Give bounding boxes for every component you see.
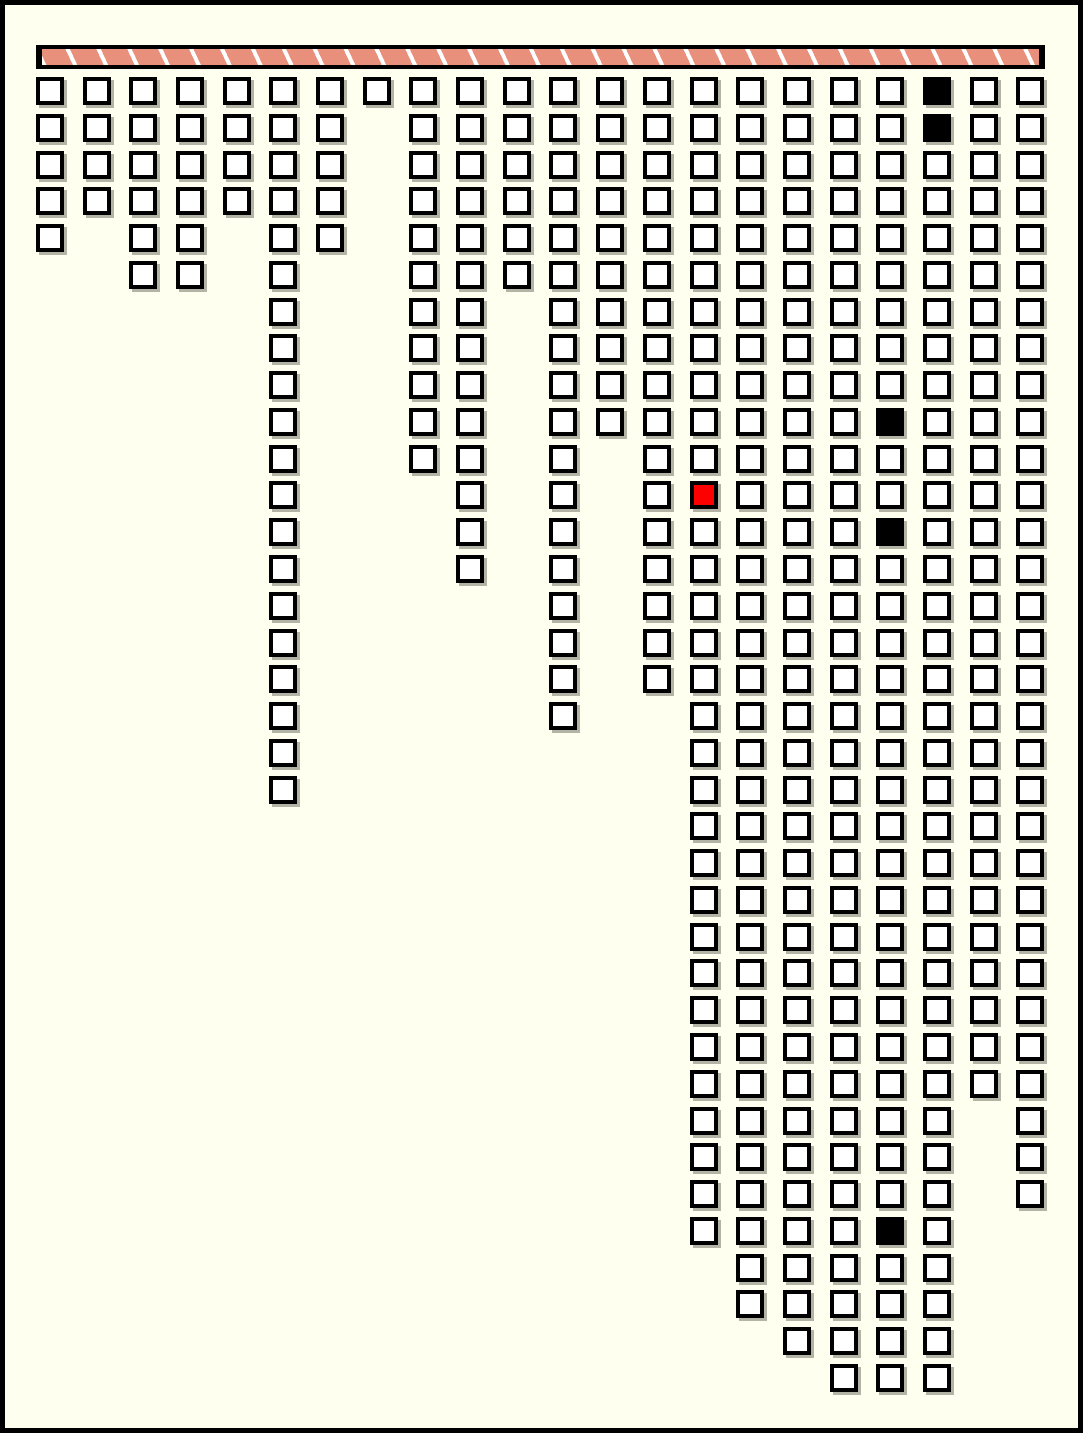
grid-cell — [736, 1180, 764, 1208]
grid-cell — [876, 1217, 904, 1245]
grid-cell — [503, 224, 531, 252]
grid-cell — [783, 481, 811, 509]
grid-cell — [269, 114, 297, 142]
grid-cell — [736, 261, 764, 289]
grid-cell — [1016, 371, 1044, 399]
grid-cell — [736, 1290, 764, 1318]
grid-cell — [269, 629, 297, 657]
grid-cell — [783, 224, 811, 252]
grid-cell — [596, 77, 624, 105]
grid-cell — [269, 77, 297, 105]
grid-cell — [83, 151, 111, 179]
grid-cell — [923, 923, 951, 951]
grid-cell — [269, 187, 297, 215]
grid-cell — [1016, 812, 1044, 840]
grid-cell — [409, 187, 437, 215]
grid-cell — [923, 996, 951, 1024]
grid-cell — [1016, 114, 1044, 142]
grid-cell — [456, 518, 484, 546]
grid-cell — [736, 776, 764, 804]
grid-cell — [830, 77, 858, 105]
grid-cell — [830, 1254, 858, 1282]
grid-cell — [783, 849, 811, 877]
grid-cell — [876, 187, 904, 215]
grid-cell — [643, 334, 671, 362]
grid-cell — [549, 114, 577, 142]
grid-cell — [783, 1070, 811, 1098]
grid-cell — [783, 1143, 811, 1171]
grid-cell — [643, 224, 671, 252]
grid-cell — [876, 1033, 904, 1061]
grid-cell — [876, 518, 904, 546]
grid-cell — [923, 555, 951, 583]
grid-cell — [269, 298, 297, 326]
grid-cell — [736, 151, 764, 179]
grid-cell — [129, 224, 157, 252]
grid-cell — [643, 592, 671, 620]
grid-cell — [923, 334, 951, 362]
grid-cell — [643, 481, 671, 509]
grid-cell — [970, 702, 998, 730]
grid-cell — [596, 224, 624, 252]
grid-cell — [1016, 959, 1044, 987]
grid-cell — [269, 702, 297, 730]
grid-cell — [503, 261, 531, 289]
grid-cell — [643, 151, 671, 179]
grid-cell — [783, 1217, 811, 1245]
grid-cell — [690, 702, 718, 730]
grid-cell — [783, 923, 811, 951]
grid-cell — [1016, 261, 1044, 289]
grid-cell — [736, 1107, 764, 1135]
grid-cell — [690, 886, 718, 914]
grid-cell — [923, 592, 951, 620]
grid-cell — [456, 555, 484, 583]
grid-cell — [736, 114, 764, 142]
grid-cell — [970, 261, 998, 289]
grid-cell — [830, 1327, 858, 1355]
grid-cell — [643, 518, 671, 546]
grid-cell — [549, 702, 577, 730]
grid-cell — [1016, 555, 1044, 583]
grid-cell — [643, 114, 671, 142]
grid-cell — [736, 1033, 764, 1061]
grid-cell — [970, 739, 998, 767]
grid-cell — [1016, 334, 1044, 362]
grid-cell — [830, 592, 858, 620]
grid-cell — [970, 518, 998, 546]
grid-cell — [830, 665, 858, 693]
grid-cell — [876, 1290, 904, 1318]
stripes-pattern — [42, 49, 1039, 65]
grid-cell — [736, 187, 764, 215]
grid-cell — [923, 224, 951, 252]
grid-cell — [1016, 408, 1044, 436]
grid-cell — [830, 1290, 858, 1318]
grid-cell — [690, 776, 718, 804]
grid-cell — [783, 298, 811, 326]
grid-cell — [736, 959, 764, 987]
grid-cell — [596, 261, 624, 289]
grid-cell — [783, 959, 811, 987]
grid-cell — [783, 371, 811, 399]
grid-cell — [970, 849, 998, 877]
grid-cell — [783, 812, 811, 840]
grid-cell — [830, 224, 858, 252]
grid-cell — [876, 151, 904, 179]
grid-cell — [269, 224, 297, 252]
grid-cell — [549, 187, 577, 215]
grid-cell — [269, 371, 297, 399]
grid-cell — [830, 812, 858, 840]
grid-cell — [970, 77, 998, 105]
grid-cell — [596, 114, 624, 142]
grid-cell — [269, 592, 297, 620]
grid-cell — [923, 408, 951, 436]
grid-cell — [876, 1364, 904, 1392]
grid-cell — [970, 298, 998, 326]
grid-cell — [690, 114, 718, 142]
grid-cell — [830, 1364, 858, 1392]
grid-cell — [690, 408, 718, 436]
grid-cell — [970, 665, 998, 693]
grid-cell — [409, 445, 437, 473]
grid-cell — [269, 739, 297, 767]
grid-cell — [830, 151, 858, 179]
grid-cell — [690, 665, 718, 693]
grid-cell — [643, 261, 671, 289]
grid-cell — [316, 77, 344, 105]
grid-cell — [876, 702, 904, 730]
grid-cell — [736, 224, 764, 252]
grid-cell — [503, 77, 531, 105]
grid-cell — [176, 187, 204, 215]
grid-cell — [83, 77, 111, 105]
grid-cell — [690, 445, 718, 473]
grid-cell — [690, 1070, 718, 1098]
grid-cell — [830, 959, 858, 987]
grid-cell — [830, 371, 858, 399]
grid-cell — [783, 114, 811, 142]
grid-cell — [269, 334, 297, 362]
grid-cell — [830, 1217, 858, 1245]
grid-cell — [876, 1070, 904, 1098]
grid-cell — [269, 776, 297, 804]
grid-cell — [830, 1180, 858, 1208]
grid-cell — [36, 77, 64, 105]
grid-cell — [690, 849, 718, 877]
grid-cell — [456, 151, 484, 179]
grid-cell — [269, 445, 297, 473]
grid-cell — [736, 849, 764, 877]
grid-cell — [970, 592, 998, 620]
grid-cell — [1016, 445, 1044, 473]
grid-cell — [36, 151, 64, 179]
grid-cell — [1016, 77, 1044, 105]
grid-cell — [363, 77, 391, 105]
grid-cell — [736, 592, 764, 620]
grid-cell — [783, 518, 811, 546]
grid-cell — [736, 408, 764, 436]
grid-cell — [549, 298, 577, 326]
grid-cell — [223, 187, 251, 215]
grid-cell — [596, 371, 624, 399]
grid-cell — [970, 224, 998, 252]
grid-cell — [736, 518, 764, 546]
grid-cell — [876, 555, 904, 583]
grid-cell — [1016, 1033, 1044, 1061]
grid-cell — [783, 702, 811, 730]
grid-cell — [830, 996, 858, 1024]
grid-cell — [1016, 739, 1044, 767]
grid-cell — [456, 298, 484, 326]
grid-cell — [923, 445, 951, 473]
grid-cell — [923, 1254, 951, 1282]
grid-cell — [783, 1290, 811, 1318]
grid-cell — [970, 555, 998, 583]
grid-cell — [876, 739, 904, 767]
grid-cell — [783, 445, 811, 473]
grid-cell — [1016, 298, 1044, 326]
grid-cell — [643, 187, 671, 215]
grid-cell — [596, 334, 624, 362]
grid-cell — [736, 555, 764, 583]
grid-cell — [830, 298, 858, 326]
grid-cell — [129, 261, 157, 289]
grid-cell — [736, 1143, 764, 1171]
grid-cell — [830, 886, 858, 914]
grid-cell — [970, 1033, 998, 1061]
grid-cell — [783, 1033, 811, 1061]
grid-cell — [876, 1327, 904, 1355]
grid-cell — [876, 298, 904, 326]
grid-cell — [970, 481, 998, 509]
grid-cell — [269, 481, 297, 509]
grid-cell — [1016, 923, 1044, 951]
grid-cell — [176, 261, 204, 289]
grid-cell — [923, 1364, 951, 1392]
grid-cell — [549, 371, 577, 399]
grid-cell — [876, 1254, 904, 1282]
grid-cell — [970, 114, 998, 142]
grid-cell — [503, 187, 531, 215]
grid-cell — [736, 1254, 764, 1282]
grid-cell — [690, 518, 718, 546]
grid-cell — [223, 77, 251, 105]
grid-cell — [503, 151, 531, 179]
grid-cell — [456, 408, 484, 436]
grid-cell — [1016, 1143, 1044, 1171]
grid-cell — [923, 77, 951, 105]
grid-cell — [643, 665, 671, 693]
grid-cell — [690, 371, 718, 399]
grid-cell — [269, 665, 297, 693]
grid-cell — [876, 776, 904, 804]
page-frame — [0, 0, 1083, 1433]
grid-cell — [736, 629, 764, 657]
grid-cell — [923, 629, 951, 657]
grid-cell — [736, 298, 764, 326]
grid-cell — [690, 1180, 718, 1208]
grid-cell — [830, 776, 858, 804]
grid-cell — [923, 665, 951, 693]
grid-cell — [129, 187, 157, 215]
grid-cell — [456, 187, 484, 215]
grid-cell — [316, 151, 344, 179]
grid-cell — [690, 481, 718, 509]
grid-cell — [876, 334, 904, 362]
grid-cell — [36, 187, 64, 215]
grid-cell — [923, 1180, 951, 1208]
grid-cell — [129, 114, 157, 142]
grid-cell — [596, 408, 624, 436]
grid-cell — [736, 739, 764, 767]
grid-cell — [830, 445, 858, 473]
grid-cell — [923, 261, 951, 289]
grid-cell — [269, 518, 297, 546]
grid-cell — [36, 114, 64, 142]
grid-cell — [456, 334, 484, 362]
grid-cell — [923, 702, 951, 730]
grid-cell — [1016, 1180, 1044, 1208]
grid-cell — [736, 1070, 764, 1098]
grid-cell — [549, 555, 577, 583]
grid-cell — [876, 592, 904, 620]
grid-cell — [456, 224, 484, 252]
grid-cell — [736, 702, 764, 730]
grid-cell — [549, 224, 577, 252]
grid-cell — [923, 776, 951, 804]
grid-cell — [690, 812, 718, 840]
grid-cell — [876, 114, 904, 142]
grid-cell — [970, 334, 998, 362]
grid-cell — [690, 555, 718, 583]
grid-cell — [736, 996, 764, 1024]
grid-cell — [970, 187, 998, 215]
grid-cell — [549, 77, 577, 105]
grid-cell — [876, 77, 904, 105]
grid-cell — [269, 555, 297, 583]
grid-cell — [409, 77, 437, 105]
grid-cell — [690, 334, 718, 362]
grid-cell — [643, 629, 671, 657]
grid-cell — [456, 261, 484, 289]
grid-cell — [269, 408, 297, 436]
grid-cell — [176, 114, 204, 142]
grid-cell — [1016, 629, 1044, 657]
grid-cell — [923, 1107, 951, 1135]
grid-cell — [549, 151, 577, 179]
grid-cell — [736, 334, 764, 362]
grid-cell — [690, 923, 718, 951]
grid-cell — [1016, 518, 1044, 546]
grid-cell — [876, 959, 904, 987]
grid-cell — [783, 996, 811, 1024]
grid-cell — [690, 187, 718, 215]
grid-cell — [830, 1143, 858, 1171]
grid-cell — [830, 1107, 858, 1135]
grid-cell — [596, 151, 624, 179]
striped-header-bar — [36, 45, 1045, 69]
grid-cell — [83, 187, 111, 215]
grid-cell — [970, 886, 998, 914]
grid-cell — [643, 77, 671, 105]
grid-cell — [409, 224, 437, 252]
grid-cell — [643, 298, 671, 326]
grid-cell — [1016, 187, 1044, 215]
grid-cell — [690, 996, 718, 1024]
grid-cell — [783, 1180, 811, 1208]
grid-cell — [736, 481, 764, 509]
grid-cell — [456, 371, 484, 399]
grid-cell — [830, 187, 858, 215]
grid-cell — [876, 665, 904, 693]
grid-cell — [176, 77, 204, 105]
grid-cell — [923, 1327, 951, 1355]
grid-cell — [830, 334, 858, 362]
grid-cell — [549, 592, 577, 620]
grid-cell — [830, 114, 858, 142]
grid-cell — [923, 187, 951, 215]
grid-cell — [923, 1070, 951, 1098]
grid-cell — [83, 114, 111, 142]
grid-cell — [970, 1070, 998, 1098]
grid-cell — [783, 1107, 811, 1135]
grid-cell — [596, 298, 624, 326]
grid-cell — [876, 886, 904, 914]
grid-cell — [783, 408, 811, 436]
grid-cell — [923, 114, 951, 142]
grid-cell — [923, 151, 951, 179]
grid-cell — [923, 1033, 951, 1061]
grid-cell — [1016, 776, 1044, 804]
grid-cell — [970, 371, 998, 399]
grid-cell — [549, 665, 577, 693]
grid-cell — [736, 445, 764, 473]
grid-cell — [783, 261, 811, 289]
grid-cell — [876, 445, 904, 473]
grid-cell — [876, 629, 904, 657]
grid-cell — [830, 555, 858, 583]
grid-cell — [643, 371, 671, 399]
grid-cell — [223, 114, 251, 142]
grid-cell — [970, 629, 998, 657]
grid-cell — [923, 1217, 951, 1245]
grid-cell — [783, 555, 811, 583]
grid-cell — [783, 629, 811, 657]
grid-cell — [830, 739, 858, 767]
grid-cell — [690, 629, 718, 657]
grid-cell — [970, 923, 998, 951]
grid-cell — [690, 592, 718, 620]
grid-cell — [876, 849, 904, 877]
grid-cell — [830, 923, 858, 951]
grid-cell — [549, 518, 577, 546]
grid-cell — [970, 776, 998, 804]
grid-cell — [970, 151, 998, 179]
grid-cell — [876, 1143, 904, 1171]
grid-cell — [830, 629, 858, 657]
grid-cell — [876, 408, 904, 436]
grid-cell — [876, 812, 904, 840]
grid-cell — [736, 371, 764, 399]
grid-cell — [456, 481, 484, 509]
grid-cell — [549, 481, 577, 509]
grid-cell — [736, 1217, 764, 1245]
grid-cell — [36, 224, 64, 252]
grid-cell — [783, 334, 811, 362]
grid-cell — [176, 151, 204, 179]
